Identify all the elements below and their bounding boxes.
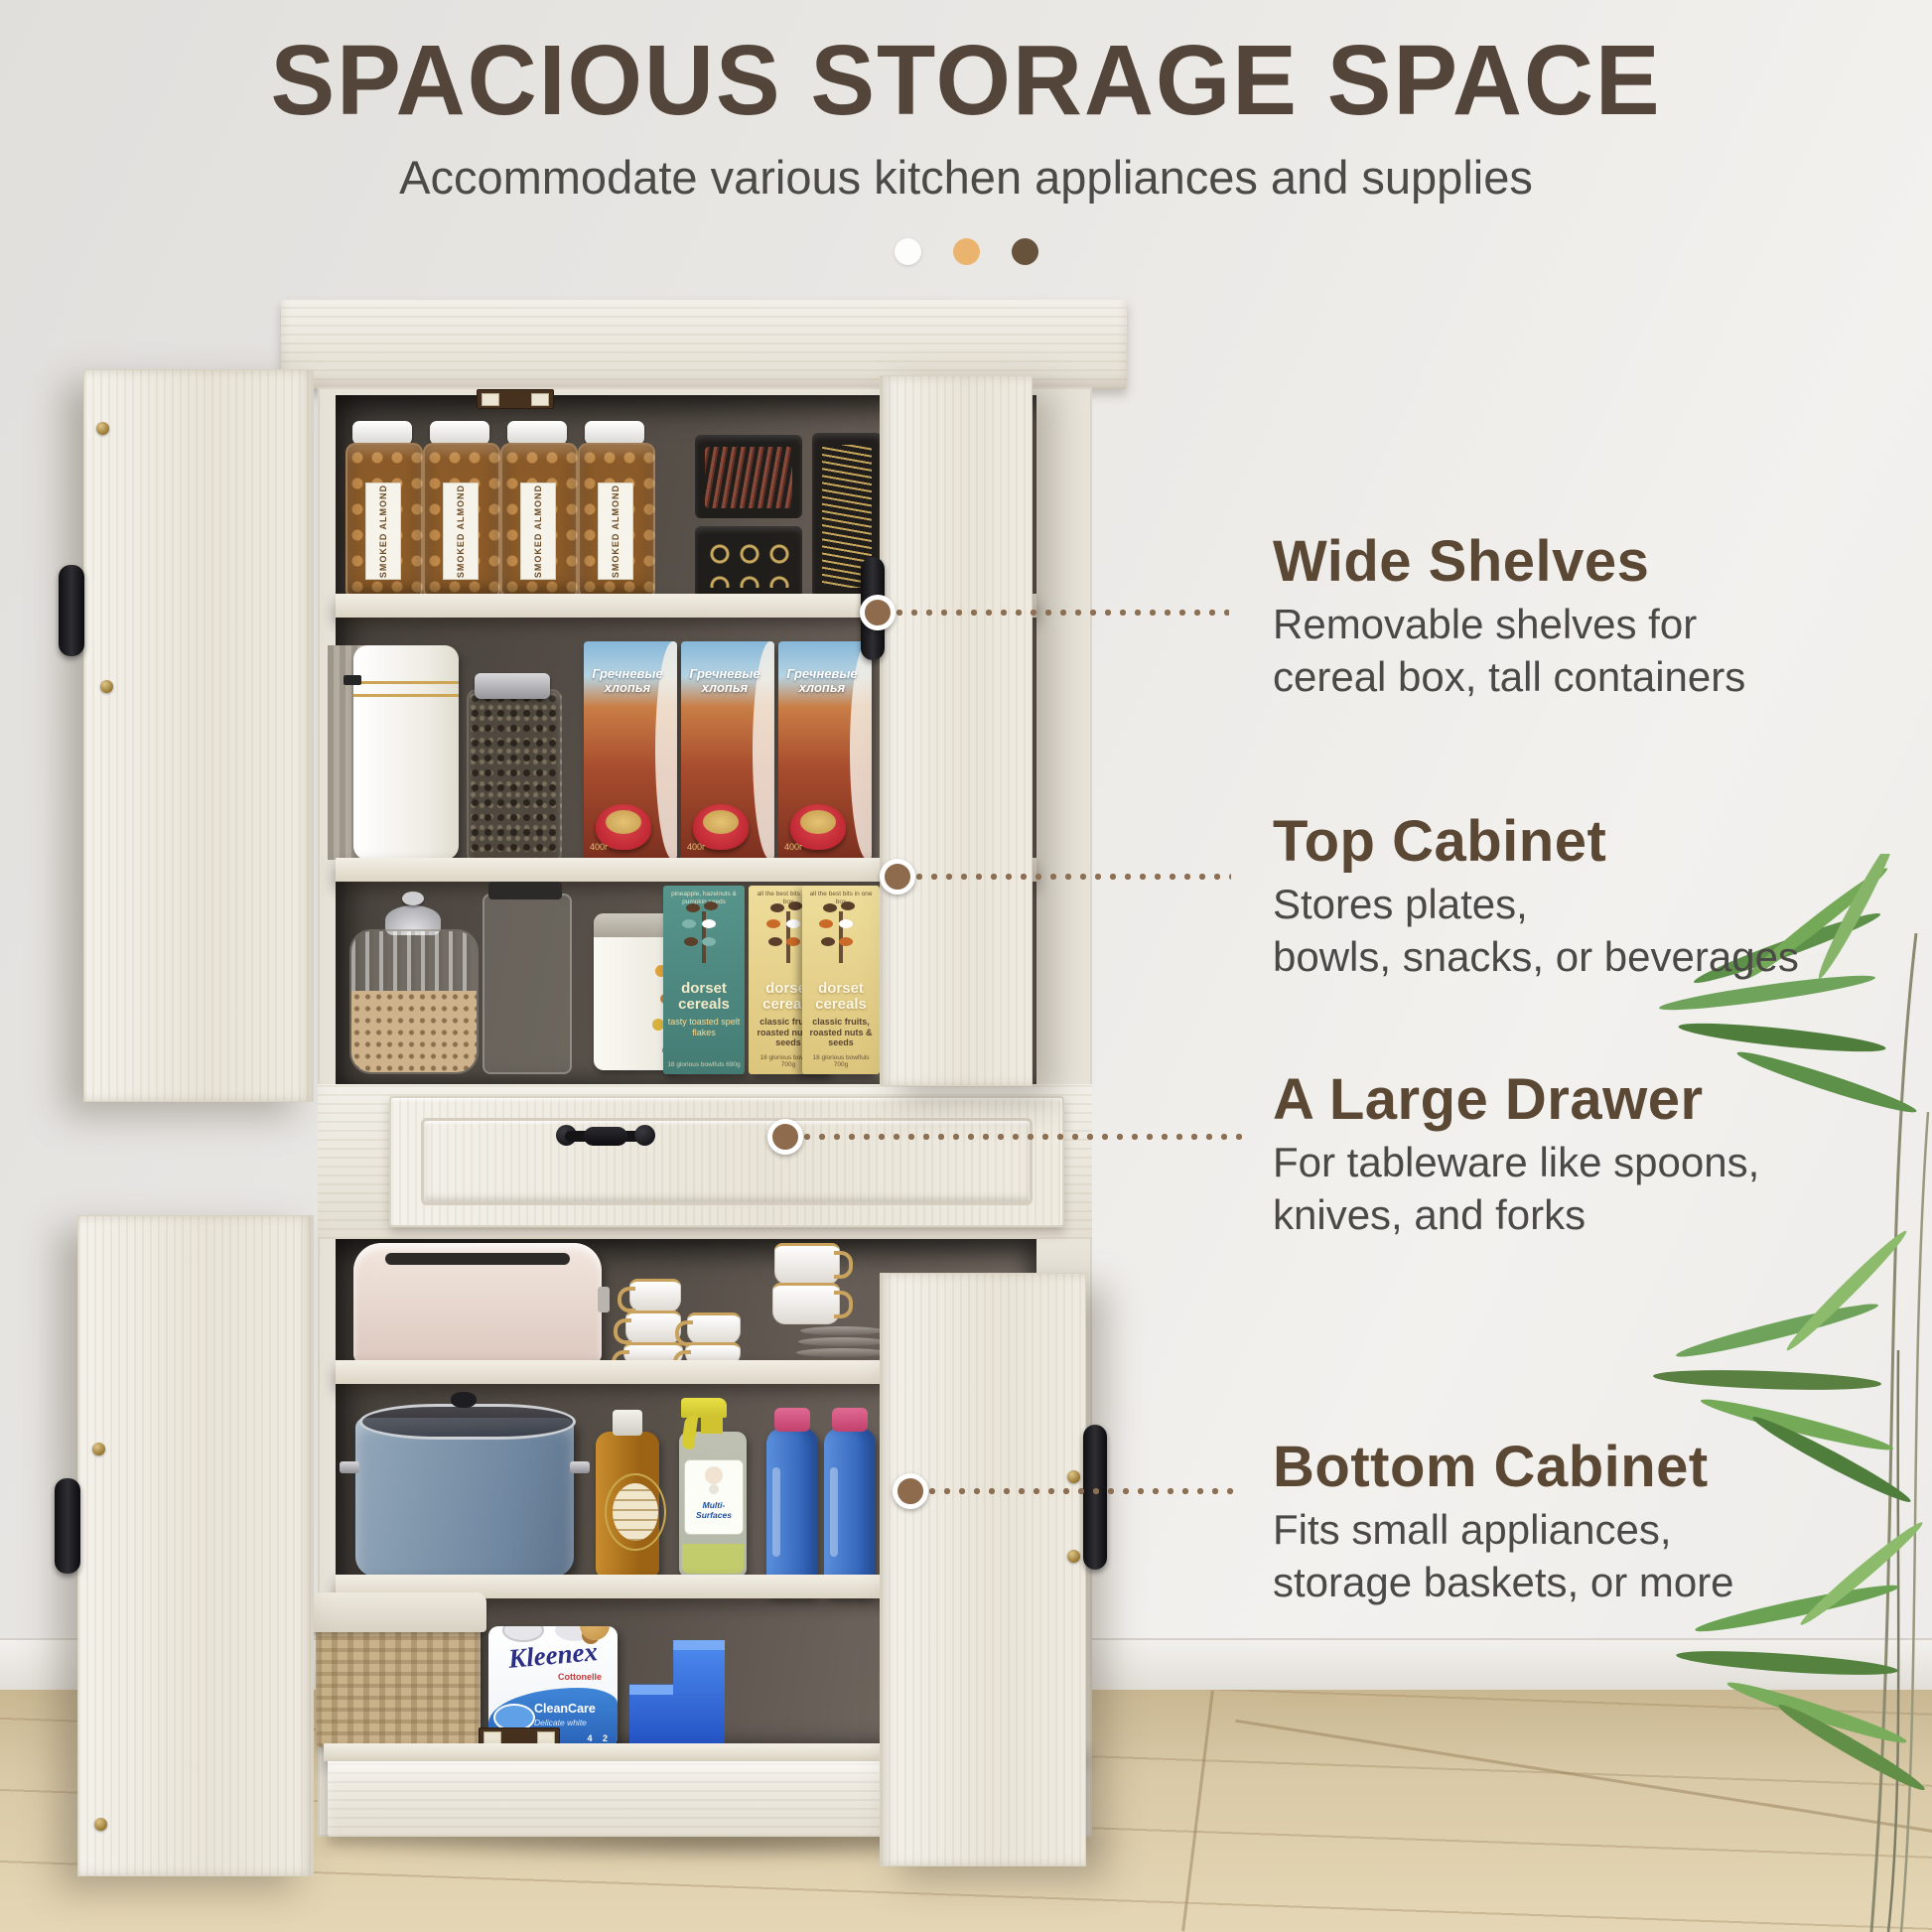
callout-heading: Top Cabinet <box>1273 812 1908 872</box>
leader-line-wide-shelves <box>896 609 1229 617</box>
door-latch-top <box>477 389 554 409</box>
leader-line-drawer <box>803 1133 1242 1141</box>
dorset-top-note: pineapple, hazelnuts & pumpkin seeds <box>667 891 741 905</box>
hinge-screw <box>1067 1470 1080 1483</box>
mug <box>772 1283 840 1324</box>
toaster <box>353 1243 602 1364</box>
callout-line: For tableware like spoons, <box>1273 1136 1908 1188</box>
pot-lid <box>359 1404 576 1440</box>
callout-line: Stores plates, <box>1273 878 1908 930</box>
almond-jar: SMOKED ALMOND <box>345 421 419 596</box>
spray-label-text: Multi-Surfaces <box>685 1500 743 1520</box>
callout-top-cabinet: Top Cabinet Stores plates, bowls, snacks… <box>1273 812 1908 983</box>
callout-large-drawer: A Large Drawer For tableware like spoons… <box>1273 1070 1908 1241</box>
kleenex-line2: Delicate white <box>534 1718 587 1727</box>
pasta-fill <box>705 447 792 508</box>
cereal-box: Гречневые хлопья400г <box>681 641 774 860</box>
kleenex-line1: CleanCare <box>534 1702 596 1716</box>
oil-bottle <box>596 1432 659 1577</box>
jar-lid <box>585 421 644 445</box>
pink-cap <box>832 1408 868 1432</box>
hinge-screw <box>92 1443 105 1455</box>
ribbed-glass-jar <box>349 929 479 1074</box>
cereal-box-title: Гречневые хлопья <box>782 667 862 695</box>
mascot-art <box>705 1466 723 1484</box>
callout-line: Fits small appliances, <box>1273 1503 1908 1556</box>
leaf-motif <box>839 911 843 963</box>
leaf-motif <box>786 911 790 963</box>
hinge-screw <box>1067 1550 1080 1563</box>
gold-band <box>353 681 459 697</box>
pink-cap <box>774 1408 810 1432</box>
page-subtitle: Accommodate various kitchen appliances a… <box>0 150 1932 205</box>
callout-wide-shelves: Wide Shelves Removable shelves for cerea… <box>1273 532 1908 703</box>
hinge-screw <box>94 1818 107 1831</box>
almond-jar-label: SMOKED ALMOND <box>365 483 401 580</box>
door-handle <box>1083 1425 1107 1570</box>
leader-dot-wide-shelves <box>860 595 896 630</box>
callout-line: cereal box, tall containers <box>1273 650 1908 703</box>
dorset-bottom-note: 18 glorious bowlfuls 690g <box>667 1061 741 1068</box>
spray-label: Multi-Surfaces <box>684 1459 744 1535</box>
dorset-bottom-note: 18 glorious bowlfuls 700g <box>806 1054 876 1068</box>
jar-lid <box>352 421 412 445</box>
cereal-box-weight: 400г <box>687 842 705 852</box>
jar-lid <box>430 421 489 445</box>
callout-line: storage baskets, or more <box>1273 1556 1908 1608</box>
callout-heading: Bottom Cabinet <box>1273 1438 1908 1497</box>
dorset-brand: dorset cereals <box>663 981 745 1013</box>
pot-knob <box>451 1392 477 1408</box>
handle-bulge <box>584 1127 627 1146</box>
callout-line: knives, and forks <box>1273 1188 1908 1241</box>
hinge-screw <box>96 422 109 435</box>
saucer-stack <box>800 1326 884 1335</box>
callout-line: Removable shelves for <box>1273 598 1908 650</box>
almond-jar: SMOKED ALMOND <box>500 421 574 596</box>
leader-line-bottom-cabinet <box>928 1487 1242 1495</box>
dorset-top-note: all the best bits in one box <box>806 891 876 905</box>
basket-liner <box>310 1592 486 1632</box>
espresso-cup <box>687 1312 741 1344</box>
header: SPACIOUS STORAGE SPACE Accommodate vario… <box>0 24 1932 270</box>
oil-label <box>605 1473 666 1551</box>
rings-container <box>695 526 802 598</box>
tall-glass-jar <box>483 894 572 1074</box>
dorset-variant: tasty toasted spelt flakes <box>667 1017 741 1037</box>
door-handle <box>55 1478 80 1574</box>
almond-jar-label: SMOKED ALMOND <box>443 483 479 580</box>
rings-fill <box>705 538 792 588</box>
almond-jar-label: SMOKED ALMOND <box>520 483 556 580</box>
callout-heading: A Large Drawer <box>1273 1070 1908 1130</box>
dorset-box-teal: pineapple, hazelnuts & pumpkin seeds dor… <box>663 886 745 1074</box>
white-dot <box>895 238 921 265</box>
cereal-box: Гречневые хлопья400г <box>778 641 872 860</box>
jar-lid <box>507 421 567 445</box>
paper-rolls <box>502 1626 544 1642</box>
callout-line: bowls, snacks, or beverages <box>1273 930 1908 983</box>
seed-jar-lid <box>475 673 550 699</box>
cereal-box-title: Гречневые хлопья <box>588 667 667 695</box>
saucer-stack <box>798 1337 886 1346</box>
detergent-bottle <box>766 1428 818 1596</box>
bottom-right-door <box>880 1273 1086 1866</box>
leader-dot-top-cabinet <box>880 859 915 895</box>
almond-jar: SMOKED ALMOND <box>423 421 496 596</box>
leader-line-top-cabinet <box>915 873 1231 881</box>
cereal-box-weight: 400г <box>784 842 802 852</box>
hinge-screw <box>100 680 113 693</box>
spray-cleaner: Multi-Surfaces <box>679 1432 747 1577</box>
seed-jar <box>467 689 562 864</box>
bottom-left-door <box>77 1215 314 1876</box>
toaster-slot <box>385 1253 570 1265</box>
leader-dot-drawer <box>767 1119 803 1155</box>
espresso-cup <box>625 1311 681 1344</box>
cereal-box: Гречневые хлопья400г <box>584 641 677 860</box>
saucer-stack <box>796 1348 888 1357</box>
white-canister <box>353 645 459 860</box>
almond-jar-label: SMOKED ALMOND <box>598 483 633 580</box>
drawer-panel <box>421 1118 1033 1205</box>
top-left-door <box>83 369 314 1102</box>
stock-pot <box>355 1418 574 1577</box>
palm-plant <box>1648 854 1932 1932</box>
top-right-door <box>880 375 1033 1086</box>
spray-liquid <box>682 1544 744 1574</box>
mug <box>774 1243 840 1285</box>
cereal-box-title: Гречневые хлопья <box>685 667 764 695</box>
latch-tab <box>344 675 361 685</box>
kleenex-sub: Cottonelle <box>558 1672 602 1682</box>
pasta-container <box>695 435 802 518</box>
callout-heading: Wide Shelves <box>1273 532 1908 592</box>
door-handle <box>59 565 84 656</box>
oil-cap <box>613 1410 642 1436</box>
wicker-basket <box>316 1618 481 1747</box>
espresso-cup <box>629 1279 681 1312</box>
ribbed-jar-knob <box>402 892 424 905</box>
callout-bottom-cabinet: Bottom Cabinet Fits small appliances, st… <box>1273 1438 1908 1608</box>
leader-dot-bottom-cabinet <box>893 1473 928 1509</box>
dorset-brand: dorset cereals <box>802 981 880 1013</box>
dorset-variant: classic fruits, roasted nuts & seeds <box>806 1017 876 1048</box>
kleenex-counts: 4 2 <box>587 1733 612 1743</box>
leaf-motif <box>702 911 706 963</box>
black-lid <box>488 882 562 899</box>
color-dots <box>895 238 1038 265</box>
cereal-box-weight: 400г <box>590 842 608 852</box>
page-title: SPACIOUS STORAGE SPACE <box>29 24 1903 138</box>
drawer-handle <box>559 1124 652 1150</box>
almond-jar: SMOKED ALMOND <box>578 421 651 596</box>
tan-dot <box>953 238 980 265</box>
product-infographic: SMOKED ALMOND SMOKED ALMOND SMOKED ALMON… <box>0 0 1932 1932</box>
spray-neck <box>701 1416 723 1434</box>
dorset-box-yellow: all the best bits in one box dorset cere… <box>802 886 880 1074</box>
brown-dot <box>1012 238 1038 265</box>
spray-nozzle <box>681 1398 727 1418</box>
detergent-bottle <box>824 1428 876 1596</box>
drawer-front <box>389 1096 1064 1227</box>
toaster-lever <box>598 1287 610 1312</box>
kleenex-brand: Kleenex <box>488 1634 618 1676</box>
